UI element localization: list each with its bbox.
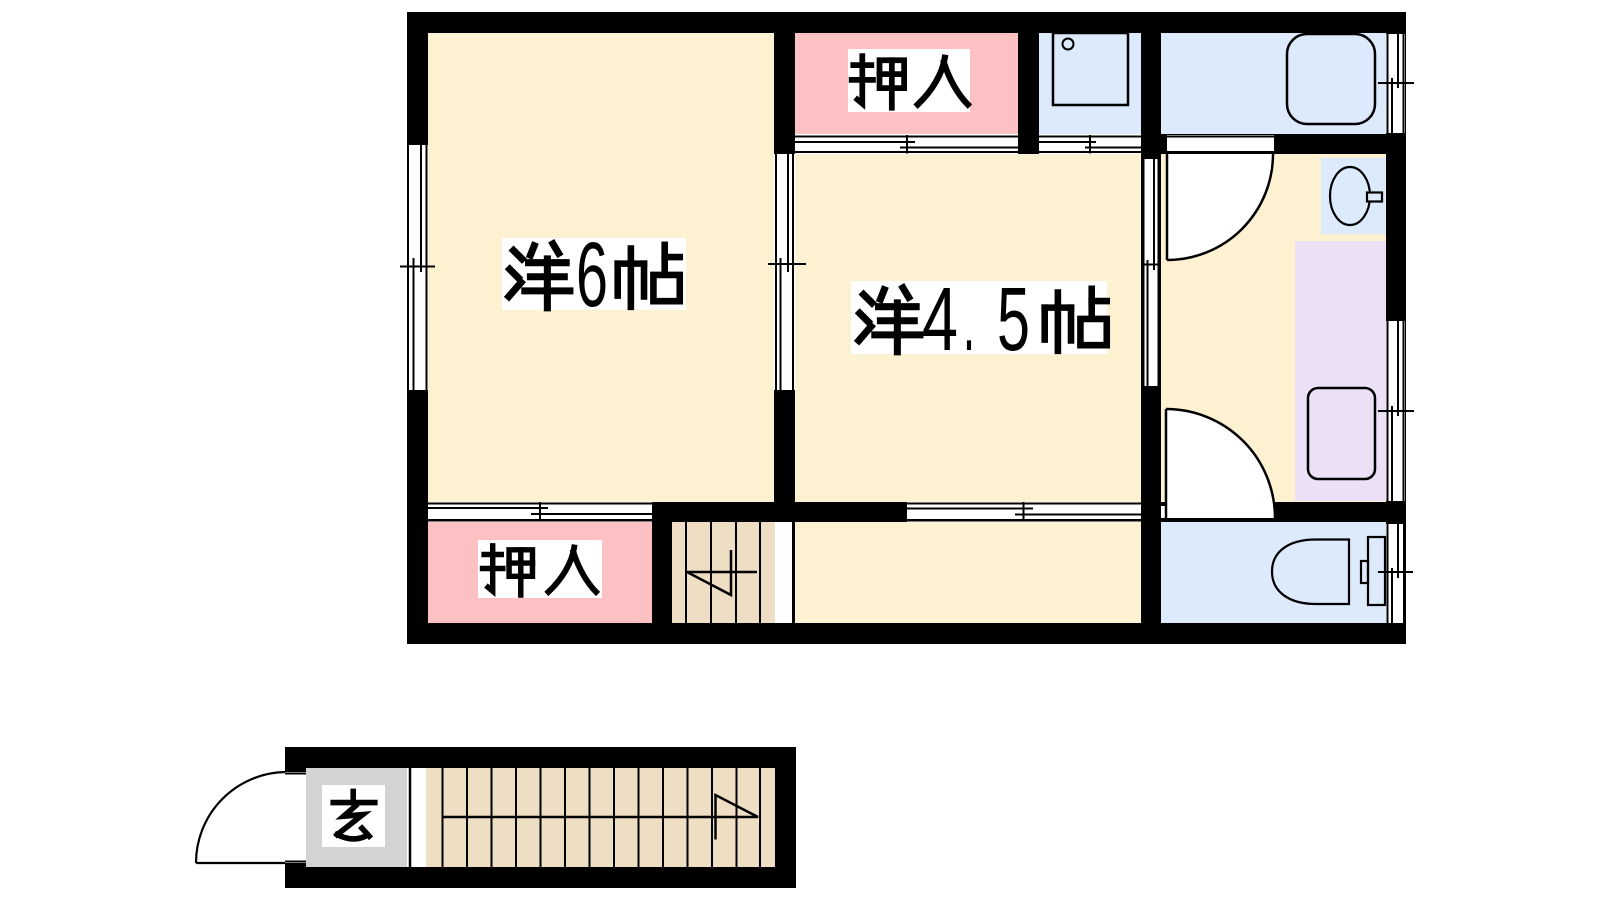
svg-text:5: 5 <box>997 270 1030 370</box>
svg-text:6: 6 <box>576 224 608 326</box>
svg-text:4: 4 <box>922 270 958 370</box>
svg-text:.: . <box>963 270 975 370</box>
